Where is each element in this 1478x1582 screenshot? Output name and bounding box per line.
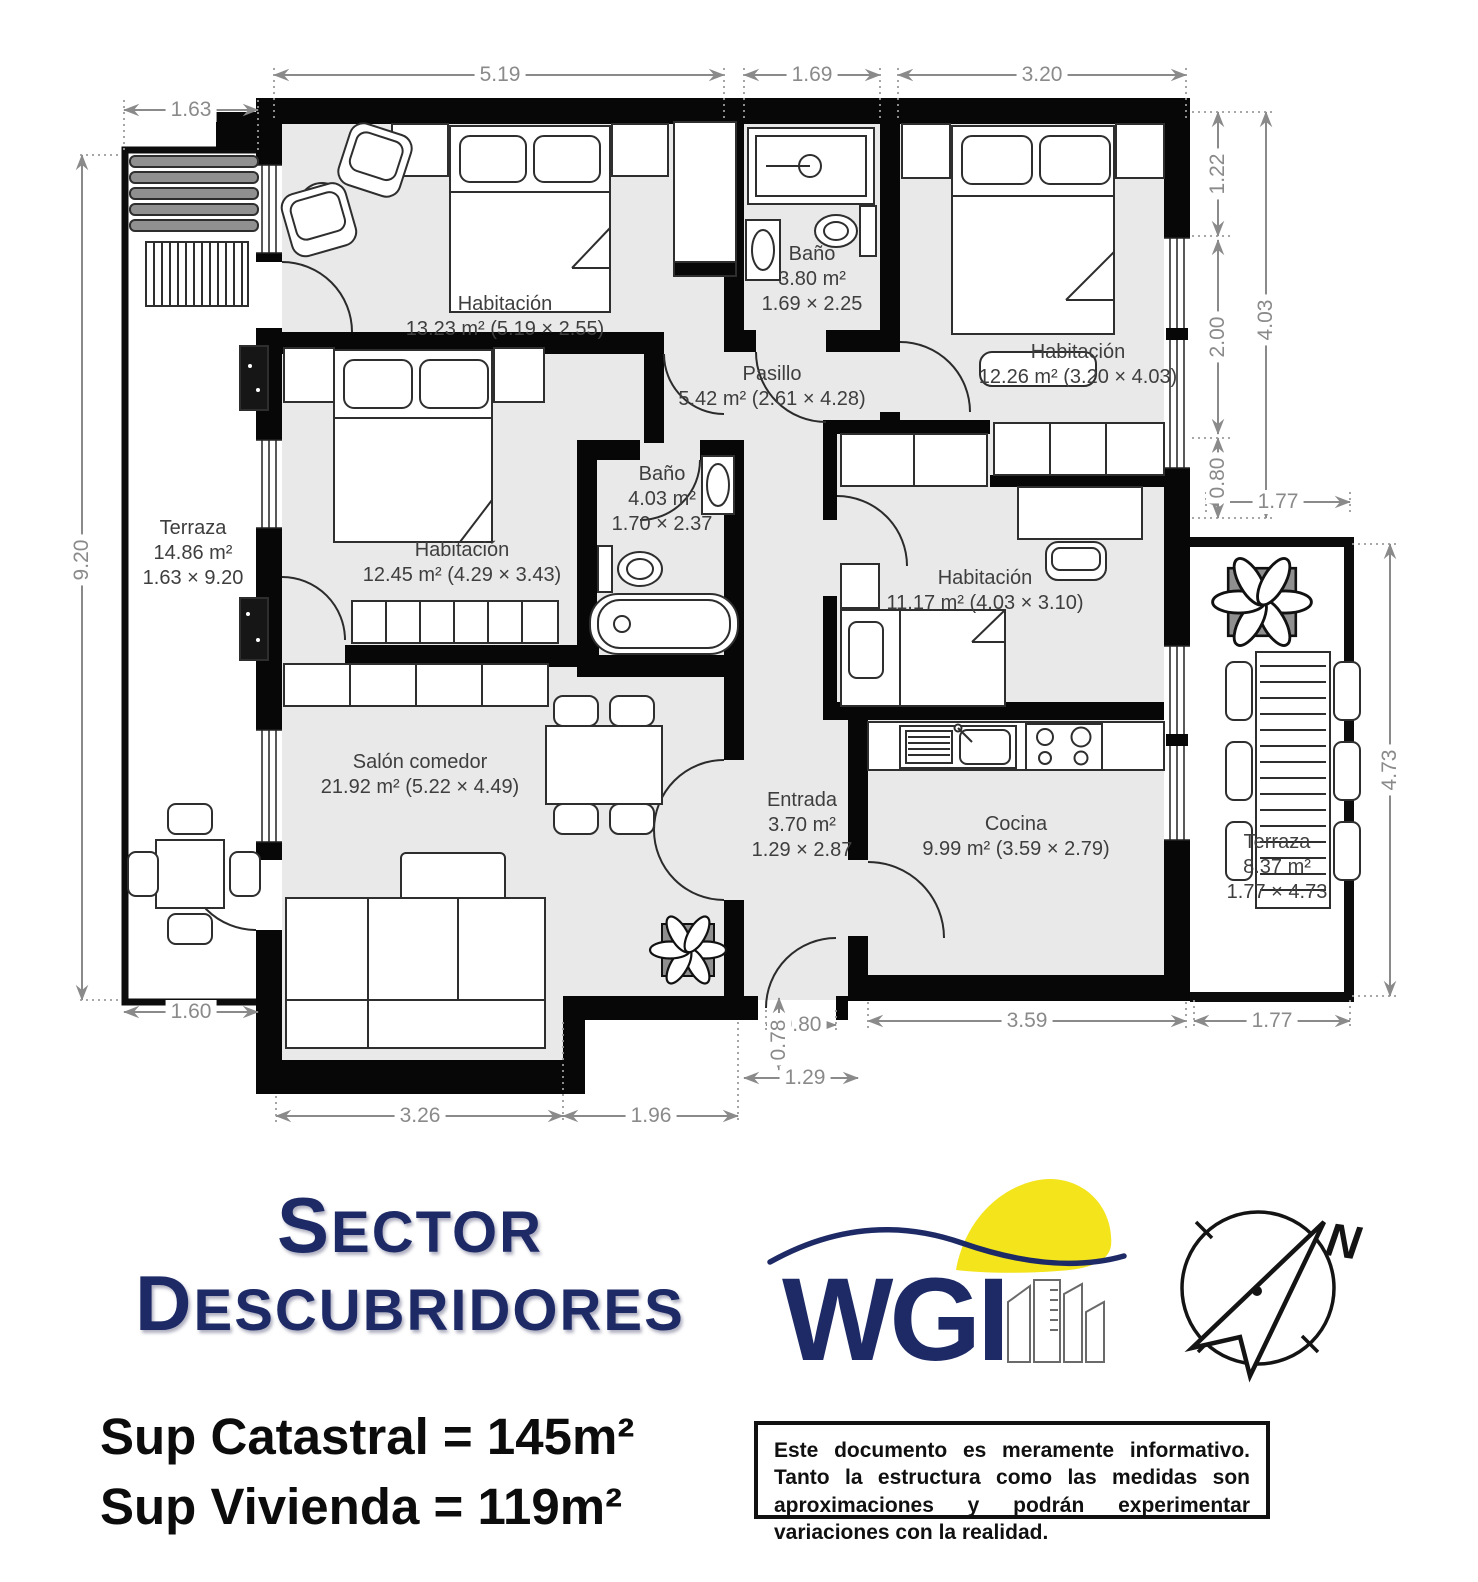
dim-right-seg1: 1.22 xyxy=(1206,149,1230,200)
room-label-entrance: Entrada3.70 m²1.29 × 2.87 xyxy=(752,788,853,864)
plant-livingroom xyxy=(650,913,726,987)
room-label-kitchen: Cocina9.99 m² (3.59 × 2.79) xyxy=(922,812,1109,862)
room-label-bedroom-4: Habitación11.17 m² (4.03 × 3.10) xyxy=(887,566,1084,616)
room-label-bath-1: Baño3.80 m²1.69 × 2.25 xyxy=(762,242,863,318)
compass-north-label: N xyxy=(1323,1212,1365,1269)
plant-terrace-right xyxy=(1213,554,1312,651)
dim-top-bedroom2: 3.20 xyxy=(1017,63,1068,87)
room-label-bedroom-2: Habitación12.26 m² (3.20 × 4.03) xyxy=(979,340,1177,390)
dim-terrace-right-height: 4.73 xyxy=(1378,745,1402,796)
room-label-terrace-left: Terraza14.86 m²1.63 × 9.20 xyxy=(143,516,244,592)
dim-terrace-left-width: 1.63 xyxy=(166,98,217,122)
sector-title-line1: SECTOR xyxy=(80,1186,740,1264)
dim-right-total: 4.03 xyxy=(1254,295,1278,346)
dim-entry-depth: 0.78 xyxy=(767,1015,791,1066)
logo-buildings-icon xyxy=(1008,1280,1104,1362)
wgi-logo: WGI xyxy=(770,1179,1124,1386)
dim-right-seg2: 2.00 xyxy=(1206,312,1230,363)
dim-terrace-left-bottom: 1.60 xyxy=(166,1000,217,1024)
floorplan-drawing: WGI N xyxy=(0,0,1478,1582)
dim-kitchen-bottom: 3.59 xyxy=(1002,1009,1053,1033)
room-label-bedroom-1: Habitación13.23 m² (5.19 × 2.55) xyxy=(406,292,604,342)
disclaimer-box: Este documento es meramente informativo.… xyxy=(754,1421,1270,1519)
dim-salon-bottom-right: 1.96 xyxy=(626,1104,677,1128)
floorplan-page: WGI N Habitación13.23 m² (5.19 × 2.55) B… xyxy=(0,0,1478,1582)
dim-terrace-left-height: 9.20 xyxy=(70,535,94,586)
dim-terrace-right-bottom: 1.77 xyxy=(1247,1009,1298,1033)
dim-top-bath: 1.69 xyxy=(787,63,838,87)
dim-top-bedroom1: 5.19 xyxy=(475,63,526,87)
compass-icon: N xyxy=(1182,1212,1365,1376)
sector-title: SECTOR DESCUBRIDORES xyxy=(80,1186,740,1342)
sector-title-line2: DESCUBRIDORES xyxy=(80,1264,740,1342)
surface-summary: Sup Catastral = 145m² Sup Vivienda = 119… xyxy=(100,1402,634,1543)
room-label-terrace-right: Terraza8.37 m²1.77 × 4.73 xyxy=(1227,830,1328,906)
dim-salon-bottom-left: 3.26 xyxy=(395,1104,446,1128)
sup-vivienda: Sup Vivienda = 119m² xyxy=(100,1472,634,1542)
logo-wgi-text: WGI xyxy=(782,1254,1006,1386)
dim-terrace-right-top: 1.77 xyxy=(1253,490,1304,514)
room-label-bath-2: Baño4.03 m²1.70 × 2.37 xyxy=(612,462,713,538)
room-label-hallway: Pasillo5.42 m² (2.61 × 4.28) xyxy=(678,362,865,412)
dim-entry-width: 1.29 xyxy=(780,1066,831,1090)
compass-needle xyxy=(1192,1222,1324,1376)
room-label-bedroom-3: Habitación12.45 m² (4.29 × 3.43) xyxy=(363,538,561,588)
dim-right-seg3: 0.80 xyxy=(1206,453,1230,504)
room-label-livingroom: Salón comedor21.92 m² (5.22 × 4.49) xyxy=(321,750,519,800)
kitchen-fixtures xyxy=(868,722,1164,770)
sup-catastral: Sup Catastral = 145m² xyxy=(100,1402,634,1472)
